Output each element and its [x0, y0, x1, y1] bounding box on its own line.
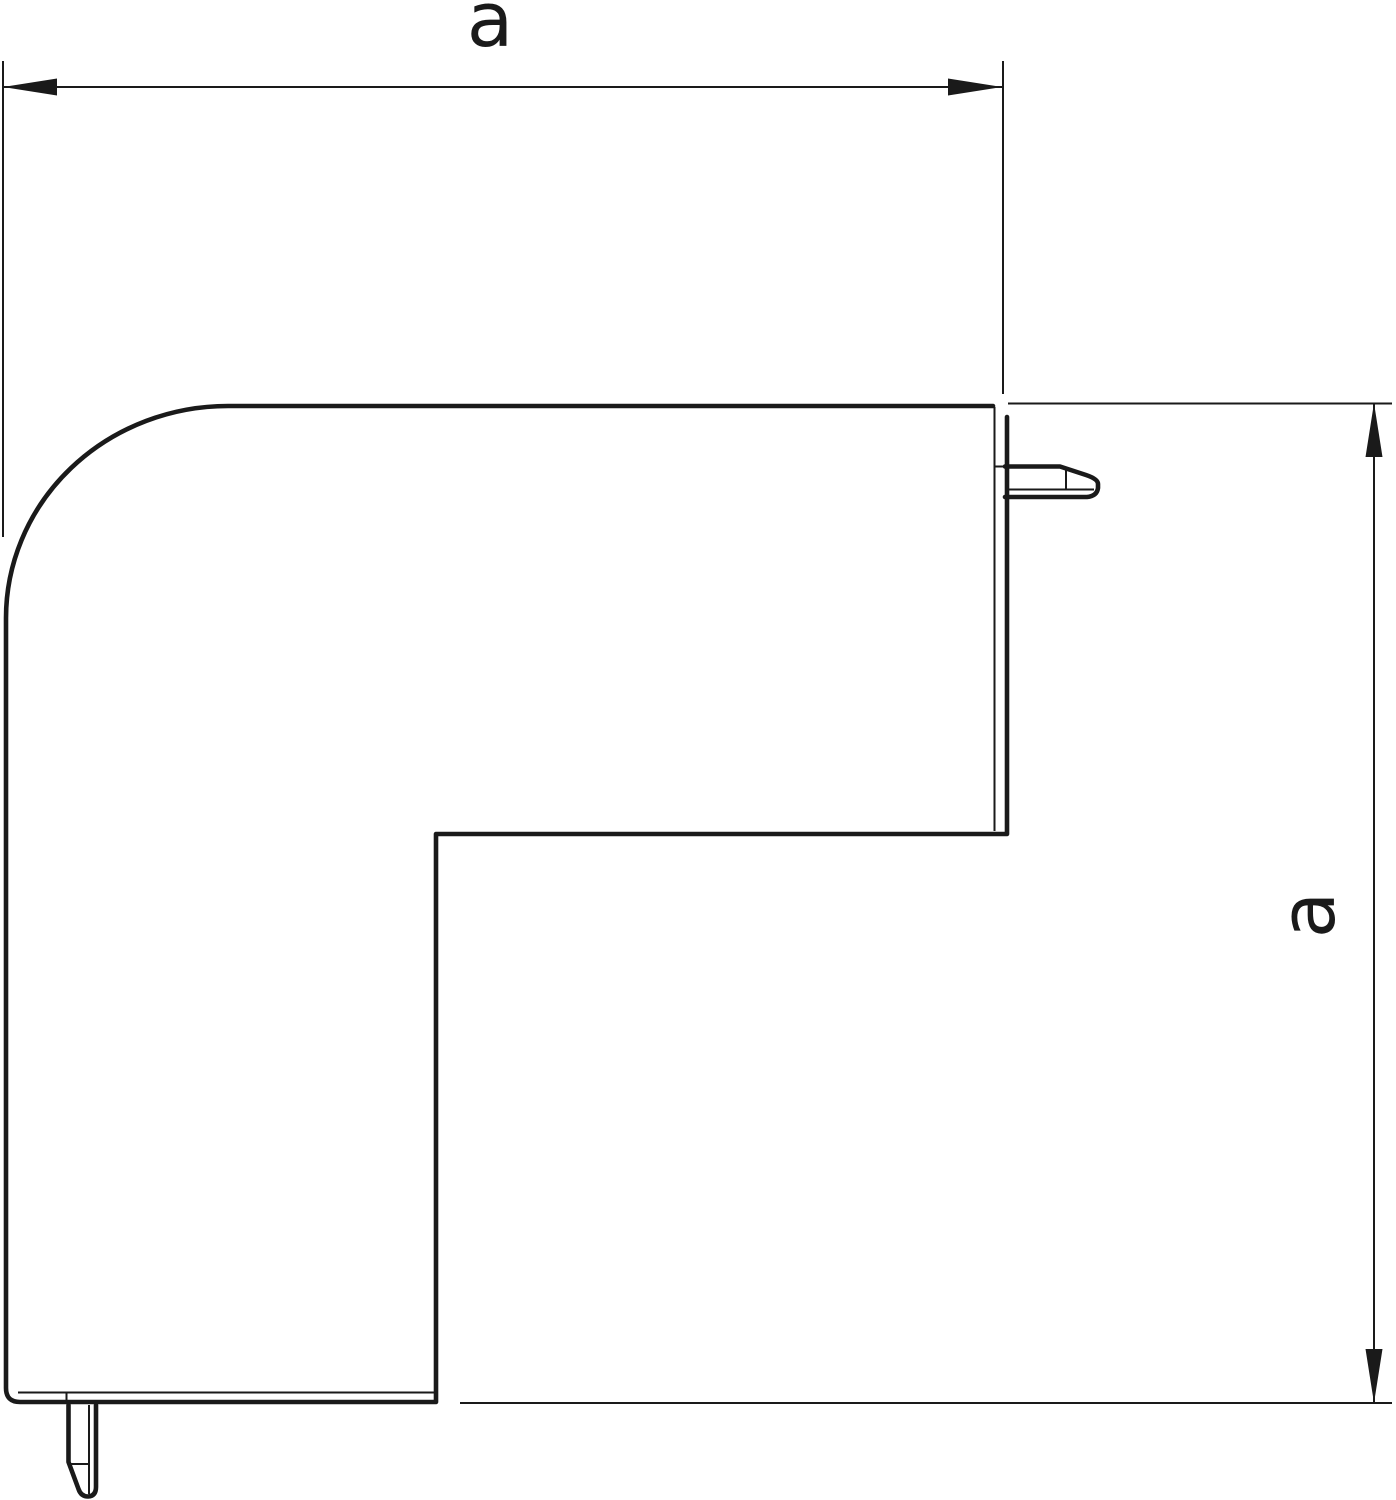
part-main-outline: [6, 406, 1007, 1402]
arrowhead-left-icon: [3, 79, 57, 96]
arrowhead-bottom-icon: [1366, 1349, 1383, 1403]
arrowhead-top-icon: [1366, 403, 1383, 457]
vertical-dimension-label: a: [1263, 892, 1352, 939]
horizontal-dimension-label: a: [467, 0, 514, 64]
drawing-canvas: a a: [0, 0, 1396, 1500]
technical-drawing: a a: [0, 0, 1396, 1500]
bottom-snap-lug: [69, 1405, 97, 1497]
horizontal-dimension-group: a: [3, 0, 1003, 537]
part-outline-group: [6, 406, 1098, 1497]
right-snap-lug: [1005, 467, 1098, 498]
arrowhead-right-icon: [948, 79, 1002, 96]
vertical-dimension-group: a: [460, 403, 1392, 1403]
part-detail-lines-group: [18, 407, 1094, 1494]
